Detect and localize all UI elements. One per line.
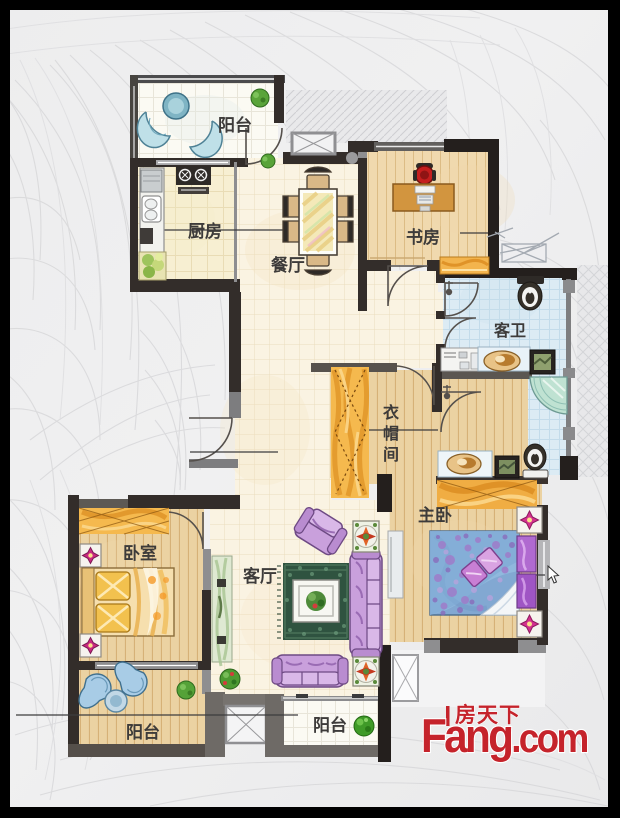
svg-text:餐厅: 餐厅 bbox=[271, 255, 305, 275]
svg-text:间: 间 bbox=[383, 445, 399, 464]
svg-text:卧室: 卧室 bbox=[123, 543, 157, 563]
svg-text:帽: 帽 bbox=[383, 424, 399, 443]
svg-text:阳台: 阳台 bbox=[218, 115, 252, 135]
svg-text:主卧: 主卧 bbox=[418, 505, 452, 525]
svg-text:阳台: 阳台 bbox=[313, 715, 347, 735]
svg-text:厨房: 厨房 bbox=[188, 221, 222, 241]
svg-text:客厅: 客厅 bbox=[242, 566, 277, 586]
svg-text:Fang.com: Fang.com bbox=[421, 711, 588, 763]
svg-text:衣: 衣 bbox=[383, 403, 399, 422]
svg-text:客卫: 客卫 bbox=[494, 321, 526, 340]
svg-text:阳台: 阳台 bbox=[126, 722, 160, 742]
svg-text:书房: 书房 bbox=[406, 227, 440, 247]
